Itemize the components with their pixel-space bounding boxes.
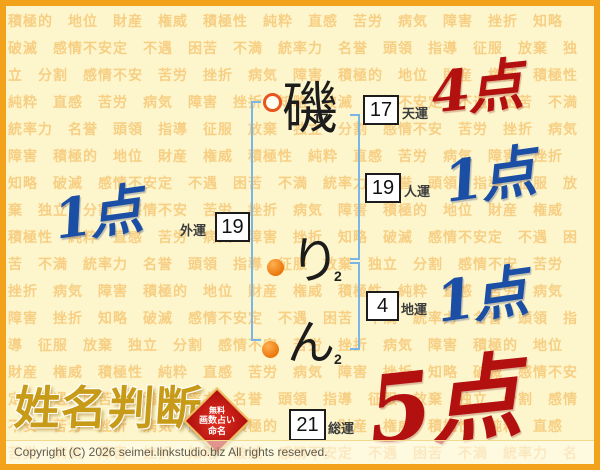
souun-value-box: 21: [289, 409, 326, 441]
gaiun-bracket: [251, 101, 261, 341]
seal-line: 画数占い: [199, 415, 235, 425]
chiun-label: 地運: [401, 299, 427, 318]
seal-line: 命名: [208, 426, 226, 436]
stroke-count: 2: [334, 351, 342, 367]
seimei-handan-result-page: 積極的 地位 財産 権威 積極性 純粋 直感 苦労 病気 障害 挫折 知略 破滅…: [0, 0, 600, 470]
footer-bar: Copyright (C) 2026 seimei.linkstudio.biz…: [6, 440, 594, 464]
chiun-score: 1点: [433, 266, 528, 328]
filled-circle-marker: [262, 341, 279, 358]
jinun-score: 1点: [441, 146, 536, 208]
tenun-score: 4点: [429, 59, 523, 118]
copyright-text: Copyright (C) 2026 seimei.linkstudio.biz…: [14, 445, 327, 459]
seal-line: 無料: [209, 406, 225, 415]
gaiun-score: 1点: [51, 184, 143, 244]
gaiun-label: 外運: [180, 220, 206, 239]
name-char-given-1: り: [290, 236, 340, 286]
open-circle-marker: [263, 93, 282, 112]
filled-circle-marker: [267, 259, 284, 276]
jinun-label: 人運: [404, 181, 430, 200]
tenun-label: 天運: [402, 103, 428, 122]
jinun-value-box: 19: [365, 173, 401, 203]
stroke-count: 17: [313, 110, 329, 126]
chiun-value-box: 4: [366, 291, 399, 321]
tenun-value-box: 17: [363, 95, 399, 125]
souun-score: 5点: [364, 354, 522, 452]
site-logo[interactable]: 姓名判断: [12, 386, 203, 432]
gaiun-value-box: 19: [215, 212, 250, 242]
jinun-bracket: [350, 114, 360, 260]
seal-text: 無料 画数占い 命名: [195, 399, 239, 443]
chiun-bracket: [350, 262, 360, 350]
stroke-count: 2: [334, 268, 342, 284]
name-char-given-2: ん: [287, 320, 335, 368]
name-char-surname: 磯: [282, 82, 338, 138]
souun-label: 総運: [328, 418, 354, 437]
